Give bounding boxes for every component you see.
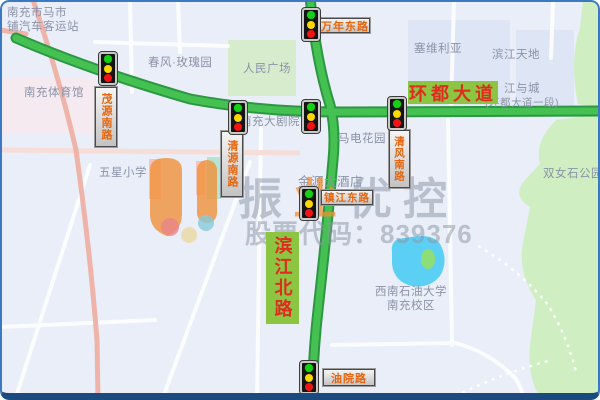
signal-lamp-yellow (234, 114, 242, 122)
traffic-light-maoyuan[interactable] (99, 52, 117, 85)
poi-grand-theater: 南充大剧院 (240, 115, 300, 129)
map-canvas[interactable]: 振业优控 股票代码：839376 南充市马市 铺汽车客运站 南充体育馆 春风·玫… (0, 0, 600, 400)
signal-lamp-green (104, 55, 112, 63)
signal-lamp-yellow (104, 65, 112, 73)
poi-swpu-line1: 西南石油大学 (366, 285, 456, 299)
poi-binjiang-tiandi: 滨江天地 (492, 48, 540, 62)
minor-street-pink (0, 150, 300, 153)
signal-lamp-green (234, 104, 242, 112)
traffic-light-youyuan[interactable] (300, 361, 318, 394)
poi-gymnasium: 南充体育馆 (24, 86, 84, 100)
signal-lamp-green (307, 103, 315, 111)
traffic-light-qingfeng[interactable] (388, 97, 406, 130)
signal-lamp-red (305, 383, 313, 391)
signal-lamp-red (307, 30, 315, 38)
road-label-huandu-avenue: 环都大道 (408, 81, 498, 104)
poi-bus-station-line2: 铺汽车客运站 (7, 20, 79, 34)
signal-lamp-red (104, 74, 112, 82)
traffic-light-zhenjiang[interactable] (300, 187, 318, 220)
poi-shuangnvshi-park: 双女石公园 (543, 167, 600, 181)
poi-peoples-square: 人民广场 (243, 62, 291, 76)
sign-wannian-east[interactable]: 万年东路 (320, 18, 370, 33)
signal-lamp-red (305, 209, 313, 217)
traffic-light-center[interactable] (302, 100, 320, 133)
sign-qingyuan-south[interactable]: 清源南路 (221, 131, 243, 197)
sign-qingfeng-south[interactable]: 清风南路 (389, 130, 410, 188)
poi-rose-garden: 春风·玫瑰园 (148, 56, 212, 70)
sign-youyuan-road[interactable]: 油院路 (323, 369, 375, 386)
signal-lamp-green (307, 11, 315, 19)
lake (392, 236, 445, 287)
poi-wuxing-school: 五星小学 (99, 166, 147, 180)
traffic-light-wannian[interactable] (302, 8, 320, 41)
traffic-light-qingyuan[interactable] (229, 101, 247, 134)
poi-swpu: 西南石油大学 南充校区 (366, 285, 456, 313)
signal-lamp-green (305, 364, 313, 372)
poi-sevilla: 塞维利亚 (414, 42, 462, 56)
sign-maoyuan-south[interactable]: 茂源南路 (95, 87, 117, 147)
poi-bus-station: 南充市马市 铺汽车客运站 (7, 6, 79, 34)
sign-zhenjiang-east[interactable]: 镇江东路 (321, 190, 373, 205)
signal-lamp-yellow (307, 113, 315, 121)
signal-lamp-red (234, 123, 242, 131)
signal-lamp-green (393, 100, 401, 108)
signal-lamp-yellow (307, 21, 315, 29)
signal-lamp-red (393, 119, 401, 127)
poi-swpu-line2: 南充校区 (366, 299, 456, 313)
shuangnvshi-park-area (519, 114, 600, 400)
signal-lamp-green (305, 190, 313, 198)
poi-bus-station-line1: 南充市马市 (7, 6, 79, 20)
road-label-binjiang-north: 滨江北路 (266, 232, 299, 324)
signal-lamp-red (307, 122, 315, 130)
signal-lamp-yellow (305, 374, 313, 382)
signal-lamp-yellow (393, 110, 401, 118)
signal-lamp-yellow (305, 200, 313, 208)
poi-madian-garden: 马电花园 (338, 132, 386, 146)
